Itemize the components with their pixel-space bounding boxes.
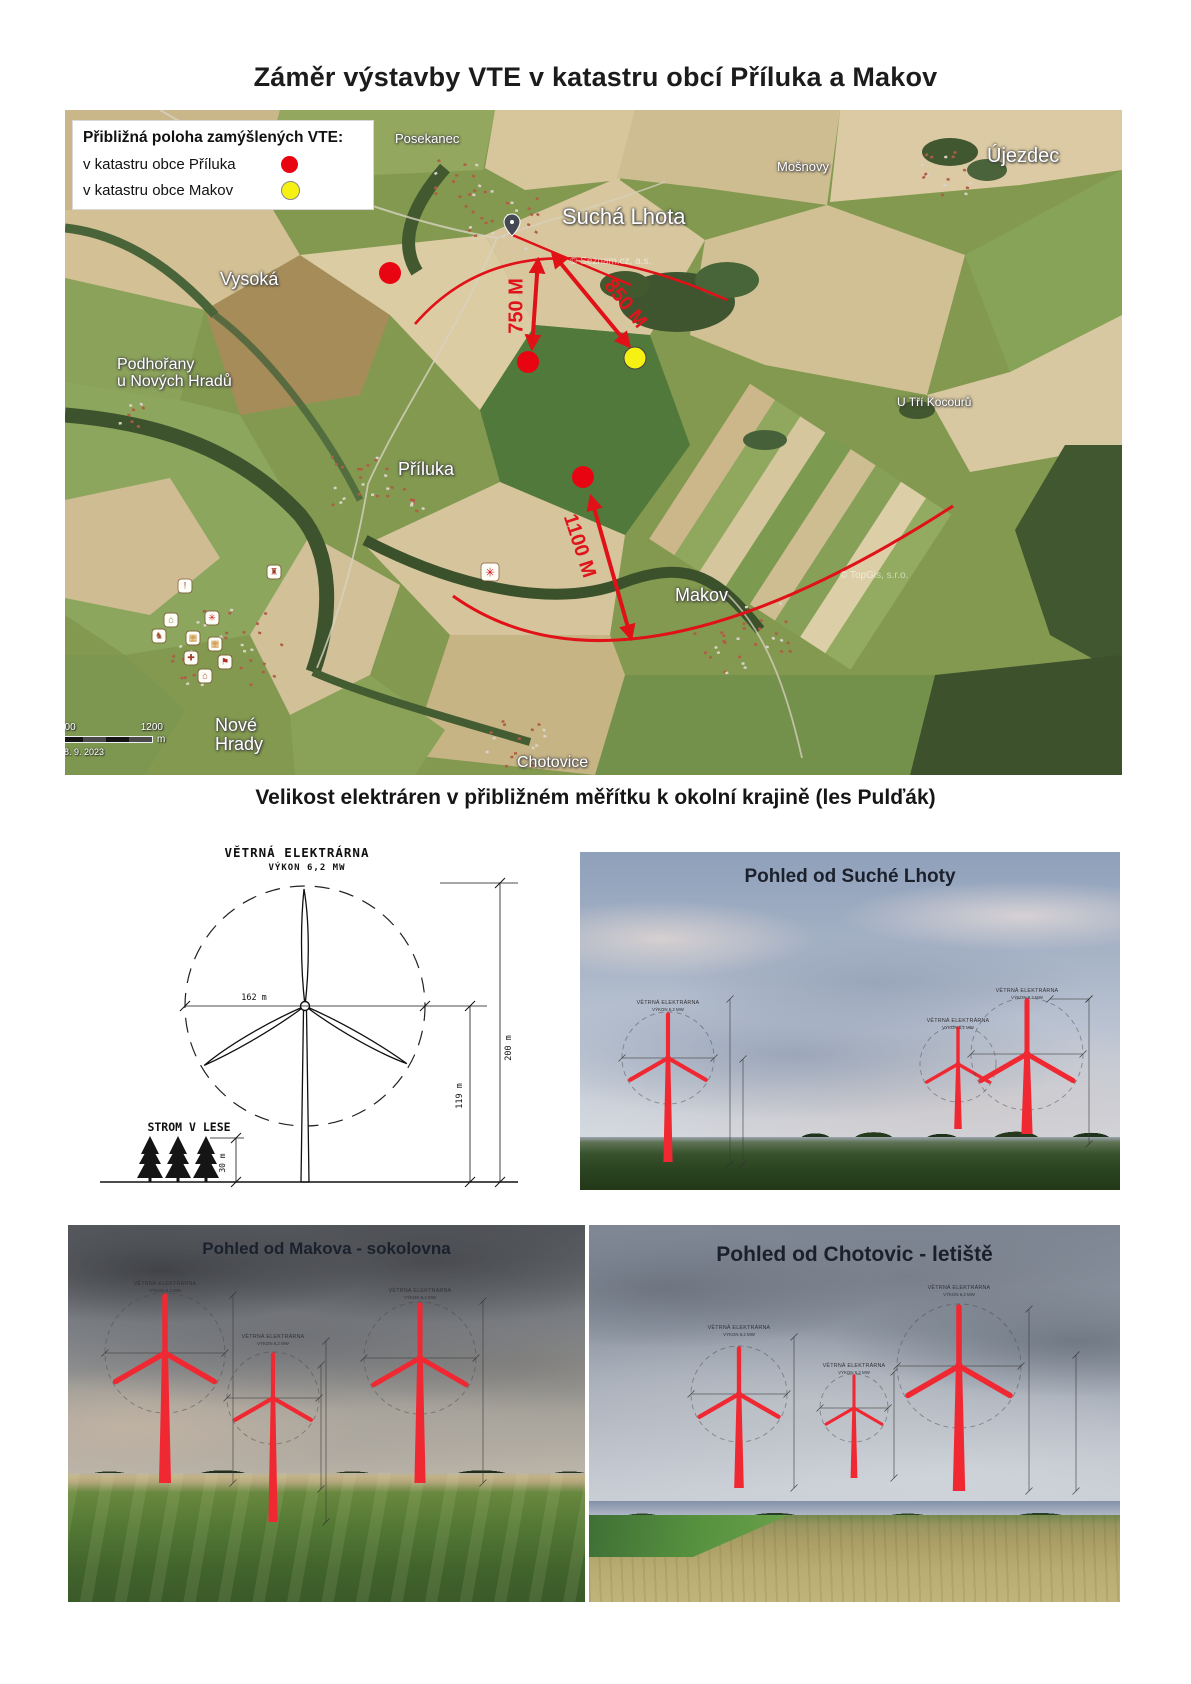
scale-end: 1200 xyxy=(141,722,163,733)
svg-text:VĚTRNÁ ELEKTRÁRNA: VĚTRNÁ ELEKTRÁRNA xyxy=(389,1286,452,1294)
radius-arc-makov xyxy=(453,506,953,641)
turbine-overlay: VĚTRNÁ ELEKTRÁRNAVÝKON 6,2 MWVĚTRNÁ ELEK… xyxy=(589,1225,1120,1602)
legend-item-label: v katastru obce Příluka xyxy=(83,156,281,173)
svg-text:VÝKON 6,2 MW: VÝKON 6,2 MW xyxy=(149,1288,182,1293)
total-height-label: 200 m xyxy=(504,1035,514,1061)
drawing-title: VĚTRNÁ ELEKTRÁRNA xyxy=(225,845,370,860)
tree-height-label: 30 m xyxy=(218,1153,227,1172)
map-pin-icon xyxy=(504,214,520,236)
turbine-overlay: VĚTRNÁ ELEKTRÁRNAVÝKON 6,2 MWVĚTRNÁ ELEK… xyxy=(68,1225,585,1602)
svg-text:VĚTRNÁ ELEKTRÁRNA: VĚTRNÁ ELEKTRÁRNA xyxy=(996,986,1059,994)
turbine-tower xyxy=(301,1010,309,1182)
svg-text:VÝKON 6,2 MW: VÝKON 6,2 MW xyxy=(404,1295,437,1300)
drawing-subtitle: VÝKON 6,2 MW xyxy=(268,861,345,873)
scale-start: 600 xyxy=(65,722,76,733)
page-title: Záměr výstavby VTE v katastru obcí Přílu… xyxy=(0,62,1191,93)
svg-text:VĚTRNÁ ELEKTRÁRNA: VĚTRNÁ ELEKTRÁRNA xyxy=(637,998,700,1006)
svg-text:VÝKON 6,2 MW: VÝKON 6,2 MW xyxy=(838,1370,871,1375)
photo-title: Pohled od Makova - sokolovna xyxy=(68,1239,585,1259)
svg-text:VĚTRNÁ ELEKTRÁRNA: VĚTRNÁ ELEKTRÁRNA xyxy=(242,1332,305,1340)
red-dot-icon xyxy=(281,156,298,173)
svg-text:VĚTRNÁ ELEKTRÁRNA: VĚTRNÁ ELEKTRÁRNA xyxy=(708,1323,771,1331)
turbine-overlay: VĚTRNÁ ELEKTRÁRNAVÝKON 6,2 MWVĚTRNÁ ELEK… xyxy=(580,852,1120,1190)
map-legend: Přibližná poloha zamýšlených VTE: v kata… xyxy=(72,120,374,210)
section-title: Velikost elektráren v přibližném měřítku… xyxy=(0,786,1191,810)
svg-text:VĚTRNÁ ELEKTRÁRNA: VĚTRNÁ ELEKTRÁRNA xyxy=(134,1279,197,1287)
svg-text:VÝKON 6,2 MW: VÝKON 6,2 MW xyxy=(723,1332,756,1337)
svg-text:VÝKON 6,2 MW: VÝKON 6,2 MW xyxy=(943,1292,976,1297)
legend-item-makov: v katastru obce Makov xyxy=(83,177,363,203)
photo-sucha-lhota: VĚTRNÁ ELEKTRÁRNAVÝKON 6,2 MWVĚTRNÁ ELEK… xyxy=(580,852,1120,1190)
satellite-map: PosekanecSuchá LhotaMošnovyÚjezdecVysoká… xyxy=(65,110,1122,775)
svg-text:VÝKON 6,2 MW: VÝKON 6,2 MW xyxy=(652,1007,685,1012)
rotor-diameter-label: 162 m xyxy=(241,993,267,1003)
photo-makov: VĚTRNÁ ELEKTRÁRNAVÝKON 6,2 MWVĚTRNÁ ELEK… xyxy=(68,1225,585,1602)
distance-arrow-750 xyxy=(532,260,538,348)
yellow-dot-icon xyxy=(281,181,300,200)
legend-item-label: v katastru obce Makov xyxy=(83,182,281,199)
distance-arrow-1100 xyxy=(591,497,631,638)
legend-title: Přibližná poloha zamýšlených VTE: xyxy=(83,129,363,147)
imagery-date: 18. 9. 2023 xyxy=(65,747,165,757)
scale-unit: m xyxy=(157,734,165,745)
svg-text:VĚTRNÁ ELEKTRÁRNA: VĚTRNÁ ELEKTRÁRNA xyxy=(928,1283,991,1291)
legend-item-priluka: v katastru obce Příluka xyxy=(83,151,363,177)
radius-arc-sucha-lhota xyxy=(415,258,727,324)
svg-text:VĚTRNÁ ELEKTRÁRNA: VĚTRNÁ ELEKTRÁRNA xyxy=(823,1361,886,1369)
turbine-technical-drawing: VĚTRNÁ ELEKTRÁRNA VÝKON 6,2 MW 162 m 200… xyxy=(92,843,522,1188)
svg-text:VÝKON 6,2 MW: VÝKON 6,2 MW xyxy=(942,1025,975,1030)
photo-title: Pohled od Suché Lhoty xyxy=(580,866,1120,888)
scale-bar-segments xyxy=(65,736,153,743)
tree-label: STROM V LESE xyxy=(147,1120,230,1134)
hub-height-label: 119 m xyxy=(455,1083,465,1109)
svg-text:VÝKON 6,2 MW: VÝKON 6,2 MW xyxy=(1011,995,1044,1000)
photo-chotovice: VĚTRNÁ ELEKTRÁRNAVÝKON 6,2 MWVĚTRNÁ ELEK… xyxy=(589,1225,1120,1602)
photo-title: Pohled od Chotovic - letiště xyxy=(589,1243,1120,1267)
svg-text:VÝKON 6,2 MW: VÝKON 6,2 MW xyxy=(257,1341,290,1346)
forest-trees xyxy=(137,1136,219,1182)
map-scale-bar: 600 1200 m 18. 9. 2023 xyxy=(65,722,165,757)
